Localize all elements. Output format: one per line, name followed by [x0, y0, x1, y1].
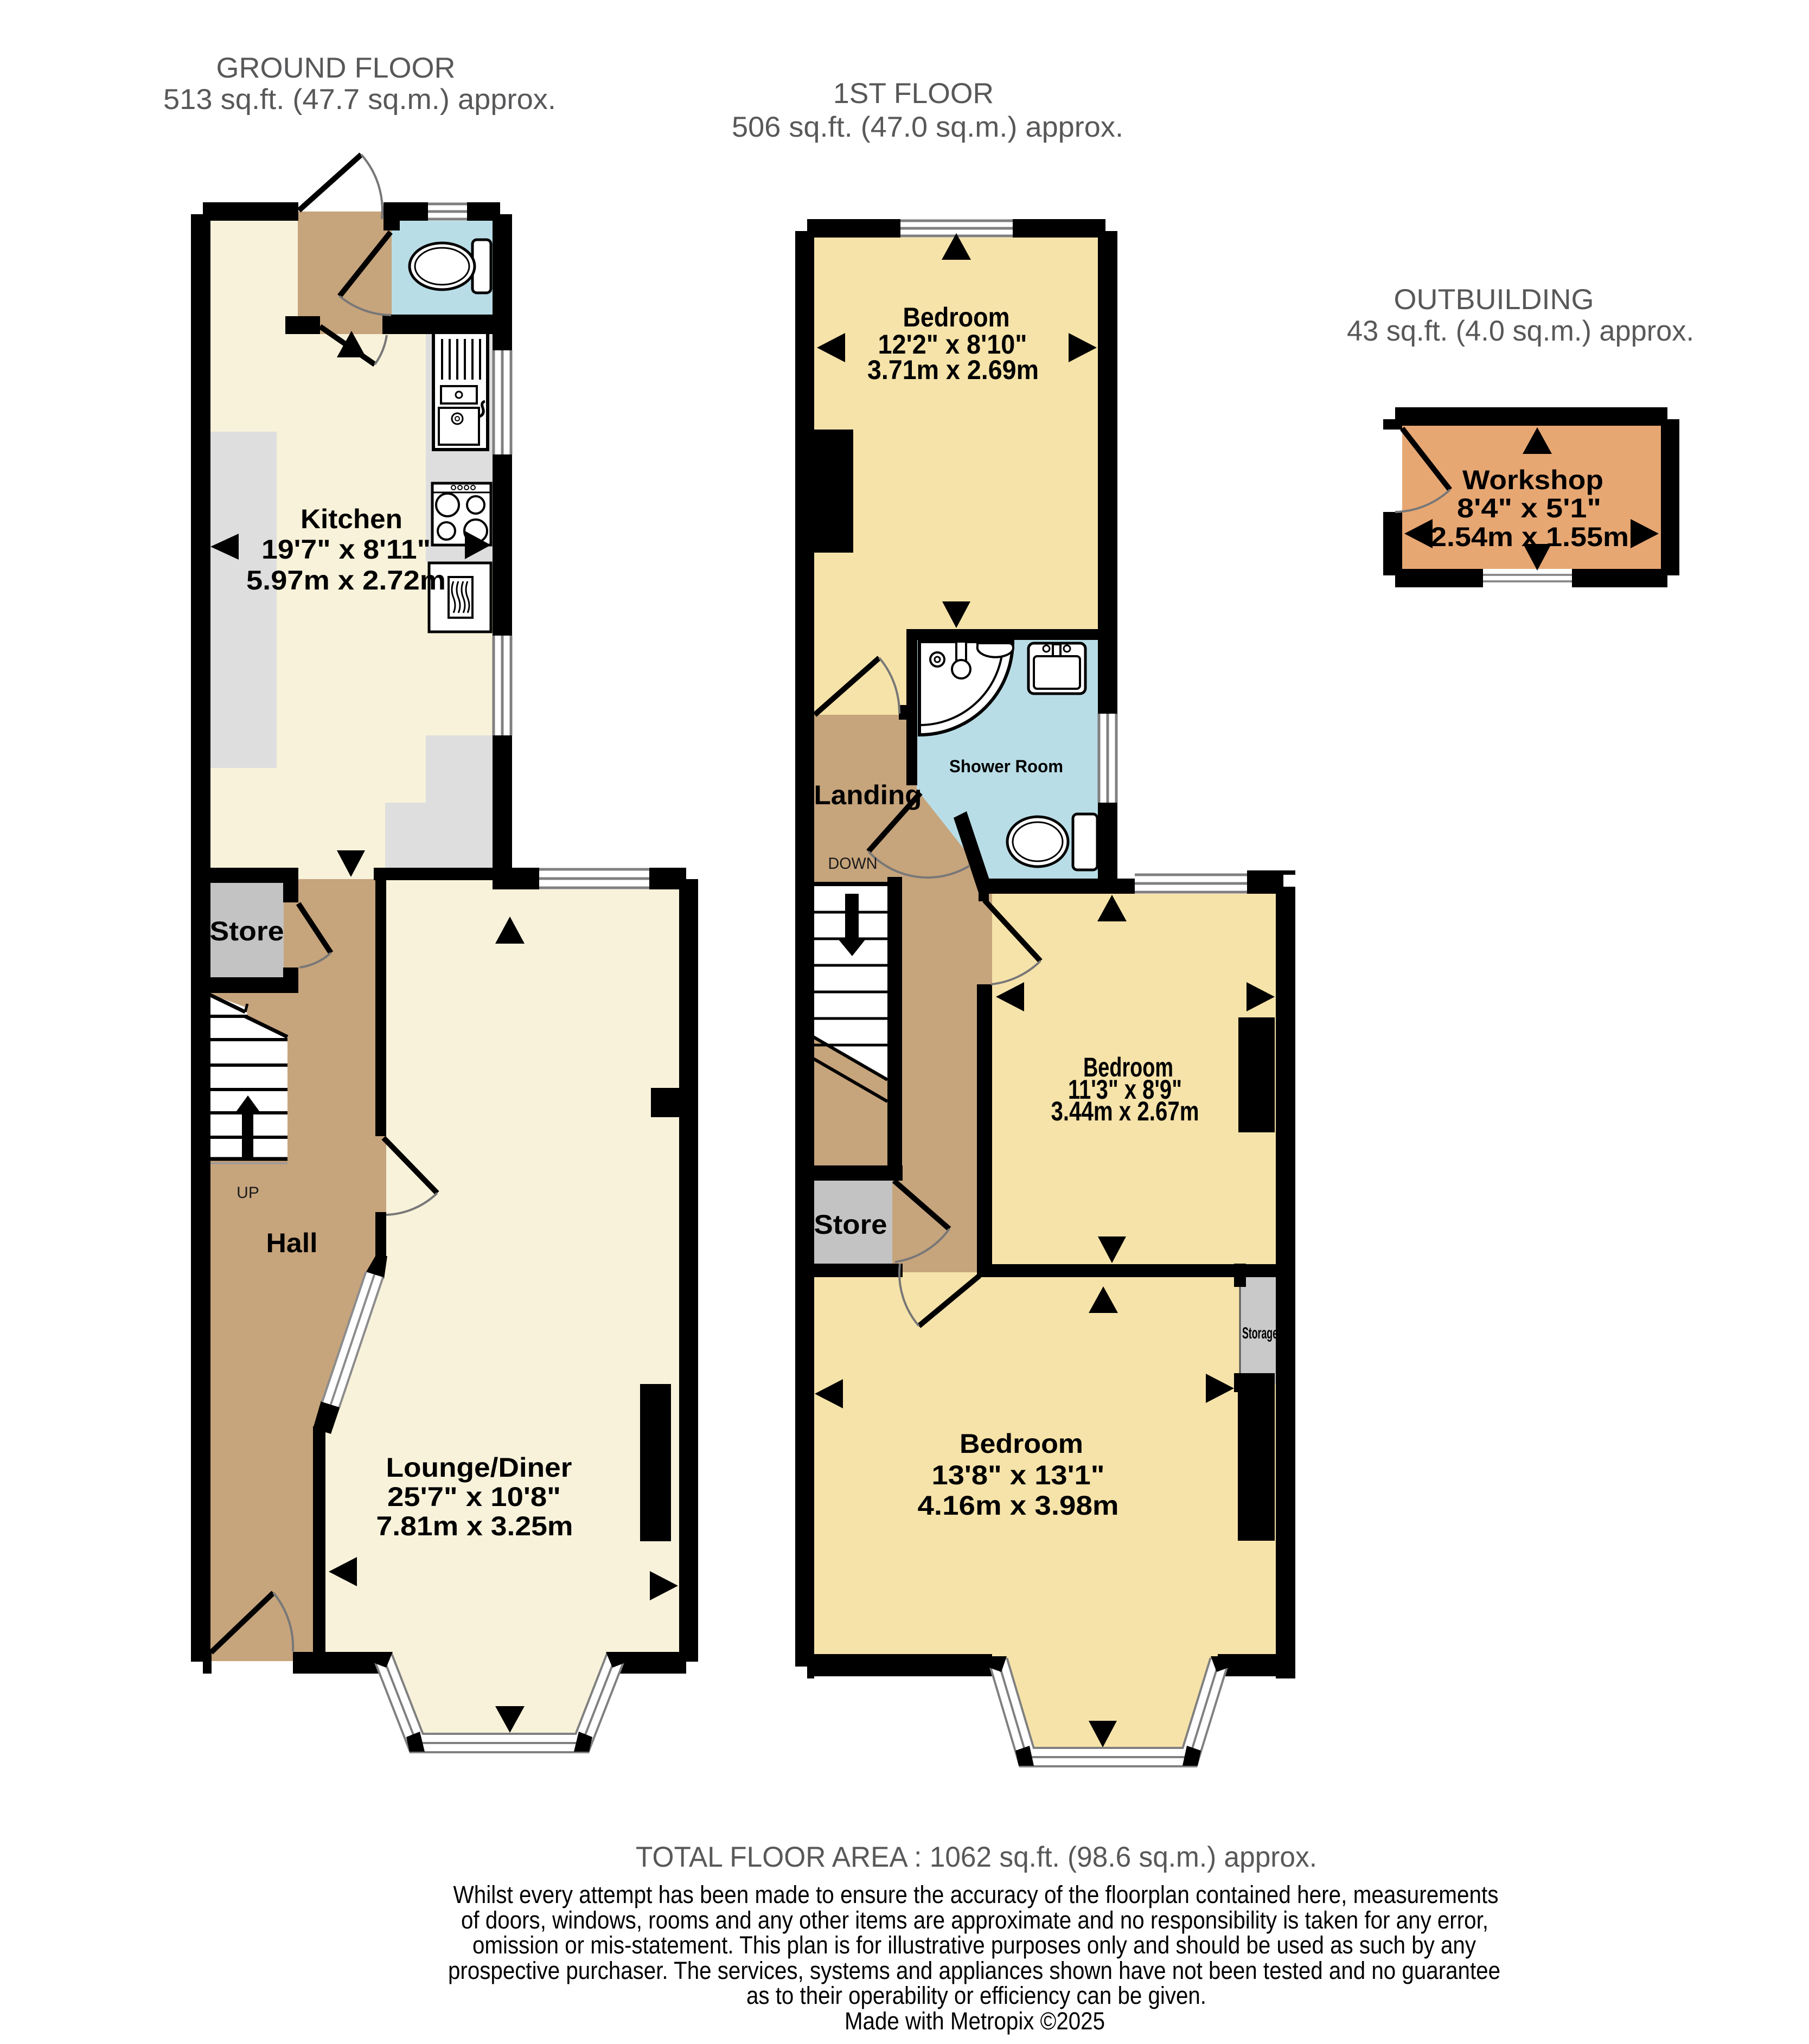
svg-text:3.71m x 2.69m: 3.71m x 2.69m [867, 355, 1039, 385]
svg-text:Bedroom: Bedroom [903, 302, 1010, 332]
svg-text:OUTBUILDING: OUTBUILDING [1394, 284, 1594, 316]
svg-text:Workshop: Workshop [1462, 465, 1603, 495]
svg-text:Whilst every attempt has been: Whilst every attempt has been made to en… [453, 1881, 1499, 1908]
svg-text:DOWN: DOWN [828, 855, 878, 873]
svg-text:513 sq.ft. (47.7 sq.m.) approx: 513 sq.ft. (47.7 sq.m.) approx. [163, 84, 556, 116]
svg-text:UP: UP [236, 1184, 259, 1202]
svg-text:omission or mis-statement. Thi: omission or mis-statement. This plan is … [472, 1931, 1476, 1959]
svg-text:TOTAL FLOOR AREA : 1062 sq.ft.: TOTAL FLOOR AREA : 1062 sq.ft. (98.6 sq.… [636, 1841, 1317, 1873]
svg-text:506 sq.ft. (47.0 sq.m.) approx: 506 sq.ft. (47.0 sq.m.) approx. [732, 111, 1123, 143]
svg-text:of doors, windows, rooms and a: of doors, windows, rooms and any other i… [461, 1906, 1488, 1934]
svg-text:2.54m x 1.55m: 2.54m x 1.55m [1430, 522, 1629, 552]
svg-text:Store: Store [210, 916, 284, 946]
svg-text:Hall: Hall [266, 1228, 318, 1258]
svg-text:Store: Store [814, 1209, 887, 1240]
svg-text:Landing: Landing [814, 780, 922, 810]
svg-text:prospective purchaser. The ser: prospective purchaser. The services, sys… [448, 1957, 1500, 1984]
svg-text:8'4" x 5'1": 8'4" x 5'1" [1457, 493, 1601, 523]
svg-text:Storage: Storage [1242, 1324, 1278, 1342]
svg-text:Shower Room: Shower Room [949, 757, 1063, 776]
svg-text:Made with Metropix ©2025: Made with Metropix ©2025 [845, 2007, 1105, 2035]
svg-text:as to their operability or eff: as to their operability or efficiency ca… [746, 1982, 1206, 2009]
svg-text:3.44m x 2.67m: 3.44m x 2.67m [1051, 1096, 1199, 1126]
svg-text:Kitchen: Kitchen [301, 504, 402, 534]
svg-text:43 sq.ft. (4.0 sq.m.) approx.: 43 sq.ft. (4.0 sq.m.) approx. [1347, 315, 1694, 347]
svg-text:25'7" x 10'8": 25'7" x 10'8" [387, 1482, 561, 1512]
svg-text:Bedroom: Bedroom [960, 1428, 1083, 1459]
svg-text:13'8" x 13'1": 13'8" x 13'1" [932, 1460, 1105, 1490]
svg-text:1ST FLOOR: 1ST FLOOR [833, 78, 994, 110]
svg-text:GROUND FLOOR: GROUND FLOOR [216, 52, 456, 84]
svg-text:Lounge/Diner: Lounge/Diner [386, 1452, 572, 1483]
svg-text:4.16m x 3.98m: 4.16m x 3.98m [918, 1490, 1119, 1521]
svg-text:5.97m x 2.72m: 5.97m x 2.72m [246, 565, 446, 595]
svg-text:7.81m x 3.25m: 7.81m x 3.25m [376, 1511, 573, 1541]
svg-text:19'7" x 8'11": 19'7" x 8'11" [261, 534, 431, 565]
